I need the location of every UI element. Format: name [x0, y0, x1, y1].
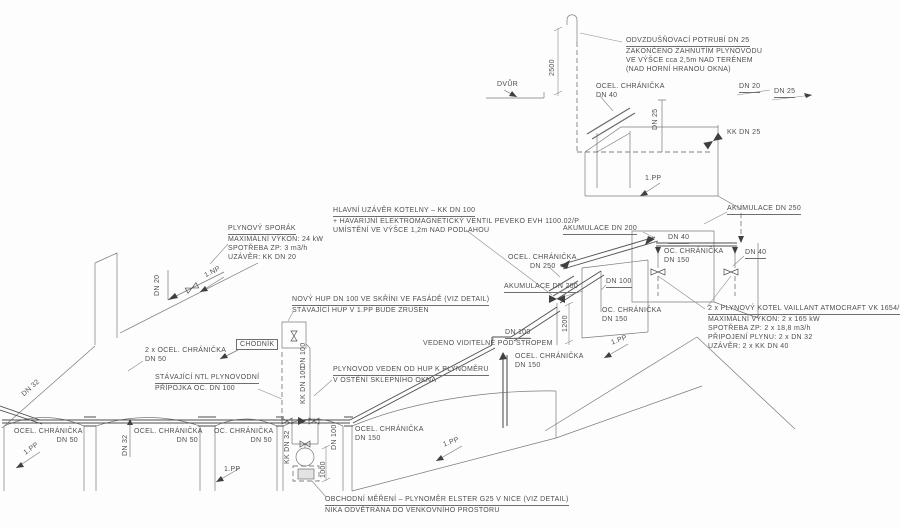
dimension-2500: 2500 [548, 59, 557, 76]
gas-meter-body [298, 469, 314, 479]
casing-2x-dn50-label: 2 x OCEL. CHRÁNIČKA DN 50 [145, 346, 226, 364]
stove-note: PLYNOVÝ SPORÁK MAXIMÁLNÍ VÝKON: 24 kW SP… [228, 224, 323, 262]
dn20-top-label: DN 20 [739, 82, 760, 93]
vent-pipe-note: ODVZDUŠŇOVACÍ POTRUBÍ DN 25 ZAKONČENO ZA… [626, 36, 762, 74]
akumulace-dn250-label: AKUMULACE DN 250 [727, 204, 801, 215]
dn25-riser-label: DN 25 [651, 109, 660, 130]
akumulace-dn200-lower-label: AKUMULACE DN 200 [504, 282, 578, 293]
kk-dn25-label: KK DN 25 [727, 128, 761, 137]
casing-dn150-mid-label: OC. CHRÁNIČKA DN 150 [602, 306, 662, 324]
dimension-1200: 1200 [561, 315, 570, 332]
vault2-casing-label: OCEL. CHRÁNIČKA DN 50 [134, 427, 198, 445]
main-shutoff-note: HLAVNÍ UZÁVĚR KOTELNY – KK DN 100 + HAVA… [333, 206, 579, 235]
piping-linework [0, 0, 900, 528]
akumulace-dn200-upper-label: AKUMULACE DN 200 [563, 224, 637, 235]
kk-dn32-label: KK DN 32 [283, 430, 292, 464]
boiler-note: 2 x PLYNOVÝ KOTEL VAILLANT ATMOCRAFT VK … [708, 304, 900, 351]
dn32-branch-label: DN 32 [121, 435, 130, 456]
dimension-1000: 1000 [319, 461, 328, 478]
dn100-hup-riser-label: DN 100 [299, 342, 308, 368]
casing-dn250-label: OCEL. CHRÁNIČKA DN 250 [508, 253, 577, 271]
level-1pp-vault3: 1.PP [224, 465, 240, 474]
meter-route-note: PLYNOVOD VEDEN OD HUP K PLYNOMĚRU V OSTĚ… [333, 365, 489, 385]
vault1-casing-label: OCEL. CHRÁNIČKA DN 50 [14, 427, 78, 445]
dn40-header-label: DN 40 [668, 233, 689, 244]
dvur-level-label: DVŮR [497, 80, 518, 89]
hup-note: NOVÝ HUP DN 100 VE SKŘÍNI VE FASÁDĚ (VIZ… [292, 295, 489, 315]
piping-axonometric-drawing: ODVZDUŠŇOVACÍ POTRUBÍ DN 25 ZAKONČENO ZA… [0, 0, 900, 528]
casing-dn40-label: OCEL. CHRÁNIČKA DN 40 [596, 82, 665, 100]
dn100-boiler-riser-label: DN 100 [606, 277, 632, 288]
vault3-casing-label: OC. CHRÁNIČKA DN 50 [214, 427, 272, 445]
chodnik-level-label: CHODNÍK [236, 339, 278, 350]
gas-pipes [0, 237, 737, 424]
casing-dn150-drop-label: OCEL. CHRÁNIČKA DN 150 [515, 352, 584, 370]
vault5-casing-label: OCEL. CHRÁNIČKA DN 150 [355, 425, 424, 443]
dn25-top-label: DN 25 [774, 87, 795, 98]
level-1pp-upper: 1.PP [645, 174, 661, 183]
dn40-right-label: DN 40 [745, 248, 766, 259]
existing-connection-note: STÁVAJÍCÍ NTL PLYNOVODNÍ PŘÍPOJKA OC. DN… [155, 373, 259, 393]
kk-dn100-riser-label: KK DN 100 [299, 366, 308, 404]
dn100-meter-label: DN 100 [330, 424, 339, 450]
commercial-metering-note: OBCHODNÍ MĚŘENÍ – PLYNOMĚR ELSTER G25 V … [325, 495, 569, 515]
dn20-riser-label: DN 20 [153, 275, 162, 296]
ceiling-run-note: DN 100 VEDENO VIDITELNĚ POD STROPEM [423, 328, 553, 348]
casing-dn150-boiler-label: OC. CHRÁNIČKA DN 150 [664, 247, 724, 265]
